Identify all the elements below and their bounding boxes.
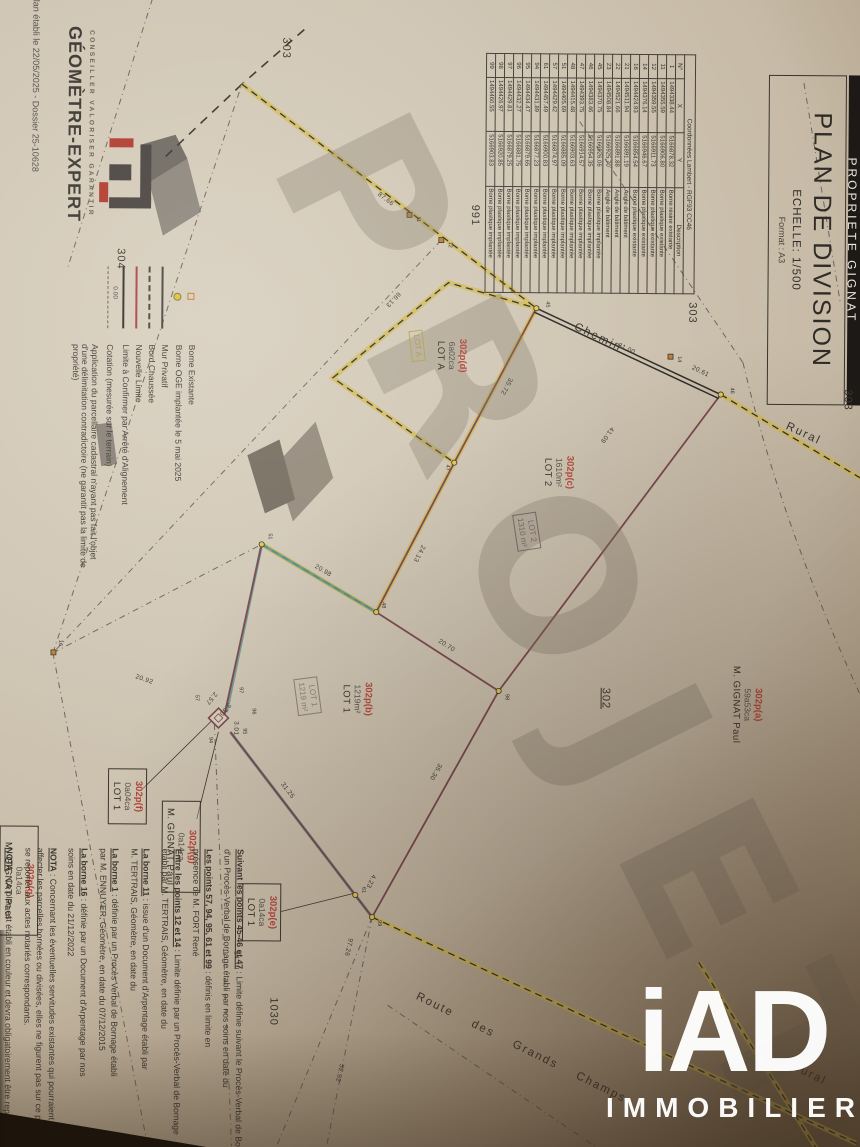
plan-scale: ECHELLE: 1/500 bbox=[789, 189, 802, 291]
parcel-number-302: 302 bbox=[599, 687, 611, 708]
geometre-expert-logo-icon bbox=[97, 138, 151, 208]
parcel-number-303: 303 bbox=[280, 37, 292, 58]
point-label: 99 bbox=[376, 920, 382, 926]
oge-marker-icon bbox=[171, 266, 181, 336]
plan-date-dossier: Plan établi le 22/05/2025 - Dossier 25-1… bbox=[29, 0, 41, 313]
plan-format: Format : A3 bbox=[777, 216, 787, 263]
stamp-lot-2: LOT 21310 m² bbox=[512, 511, 541, 552]
point-label: 97 bbox=[237, 687, 243, 693]
point-label: 12 bbox=[446, 241, 452, 247]
photo-of-survey-plan: PROJET PROPRIETE GIGNAT PLAN DE DIVISION… bbox=[0, 0, 860, 1147]
logo-shape bbox=[109, 197, 151, 208]
alignment-limit-line-icon bbox=[118, 266, 128, 336]
parcel-label-lot-1: 302p(b)1219m²LOT 1 bbox=[340, 665, 373, 731]
point-label: 51 bbox=[266, 533, 272, 539]
logo-shape bbox=[109, 164, 131, 180]
point-label: 11 bbox=[414, 216, 420, 222]
table-row: 991494460.555166903.83Borne plastique im… bbox=[484, 53, 495, 292]
stamp-lot-a: LOT A bbox=[408, 329, 425, 361]
point-label: 45 bbox=[544, 301, 550, 307]
logo-tagline: CONSEILLER VALORISER GARANTIR bbox=[86, 30, 95, 260]
point-label: 57 bbox=[193, 694, 199, 700]
point-label: 96 bbox=[250, 708, 256, 714]
parcel-number-1030: 1030 bbox=[267, 997, 279, 1026]
parcel-number-303: 303 bbox=[841, 389, 853, 410]
legend-item: 0.00 Cotation (mesurée sur le terrain) bbox=[98, 266, 114, 586]
wall-line-icon bbox=[157, 266, 167, 336]
cotation-line-icon: 0.00 bbox=[102, 266, 112, 336]
iad-logo-subtext: IMMOBILIER bbox=[606, 1092, 860, 1124]
point-label: 61 bbox=[360, 887, 366, 893]
point-label: 98 bbox=[503, 694, 509, 700]
notes-block: Suivant les points 45-46 et 47 : Limite … bbox=[0, 847, 246, 1147]
parcel-label-lot-2: 302p(c)1610m²LOT 2 bbox=[541, 439, 574, 505]
legend-item: Limite à Confirmer par Arrêté d'Aligneme… bbox=[114, 266, 130, 586]
legend-item: Application du parcellaire cadastral n'a… bbox=[61, 265, 99, 585]
parcel-label-302pa: 302p(a)59a53caM. GIGNAT Paul bbox=[730, 658, 764, 750]
logo-shape-red bbox=[99, 182, 108, 202]
parcel-number-303: 303 bbox=[686, 302, 698, 323]
iad-immobilier-watermark: iAD IMMOBILIER bbox=[606, 972, 860, 1124]
logo-shape-red bbox=[109, 138, 133, 147]
point-label: 94 bbox=[207, 736, 213, 742]
point-label: 14 bbox=[675, 356, 681, 362]
roadside-line-icon bbox=[144, 266, 154, 336]
plan-title: PLAN DE DIVISION bbox=[806, 112, 837, 368]
new-limit-line-icon bbox=[131, 266, 141, 336]
parcel-label-302pf: 302p(f)0a04caLOT 1 bbox=[107, 768, 146, 824]
property-banner: PROPRIETE GIGNAT bbox=[846, 75, 860, 405]
existing-marker-icon bbox=[184, 266, 194, 336]
stamp-lot-1: LOT 11219 m² bbox=[293, 676, 322, 716]
iad-logo: iAD bbox=[606, 972, 860, 1090]
parcel-label-lot-a: 302p(d)6a02caLOT A bbox=[434, 322, 467, 388]
point-label: 95 bbox=[241, 728, 247, 734]
title-box: PLAN DE DIVISION ECHELLE: 1/500 Format :… bbox=[766, 74, 846, 405]
parcel-label-302pe: 302p(e)0a14caLOT 1 bbox=[241, 883, 280, 941]
logo-shape bbox=[140, 144, 151, 202]
coordinates-table: Coordonnées Lambert - RGF93 CC46 N° X Y … bbox=[484, 52, 696, 293]
parcel-number-991: 991 bbox=[468, 204, 480, 225]
point-label: 16 bbox=[56, 639, 62, 645]
parcel-number-304: 304 bbox=[114, 248, 126, 269]
point-label: 46 bbox=[728, 387, 734, 393]
logo-name: GÉOMÈTRE-EXPERT bbox=[62, 25, 85, 285]
point-label: 48 bbox=[380, 602, 386, 608]
legend-item: Borne OGE implantée le 5 mai 2025 bbox=[167, 266, 183, 586]
point-label: 47 bbox=[444, 464, 450, 470]
dim-label: 3.01 bbox=[232, 721, 239, 735]
